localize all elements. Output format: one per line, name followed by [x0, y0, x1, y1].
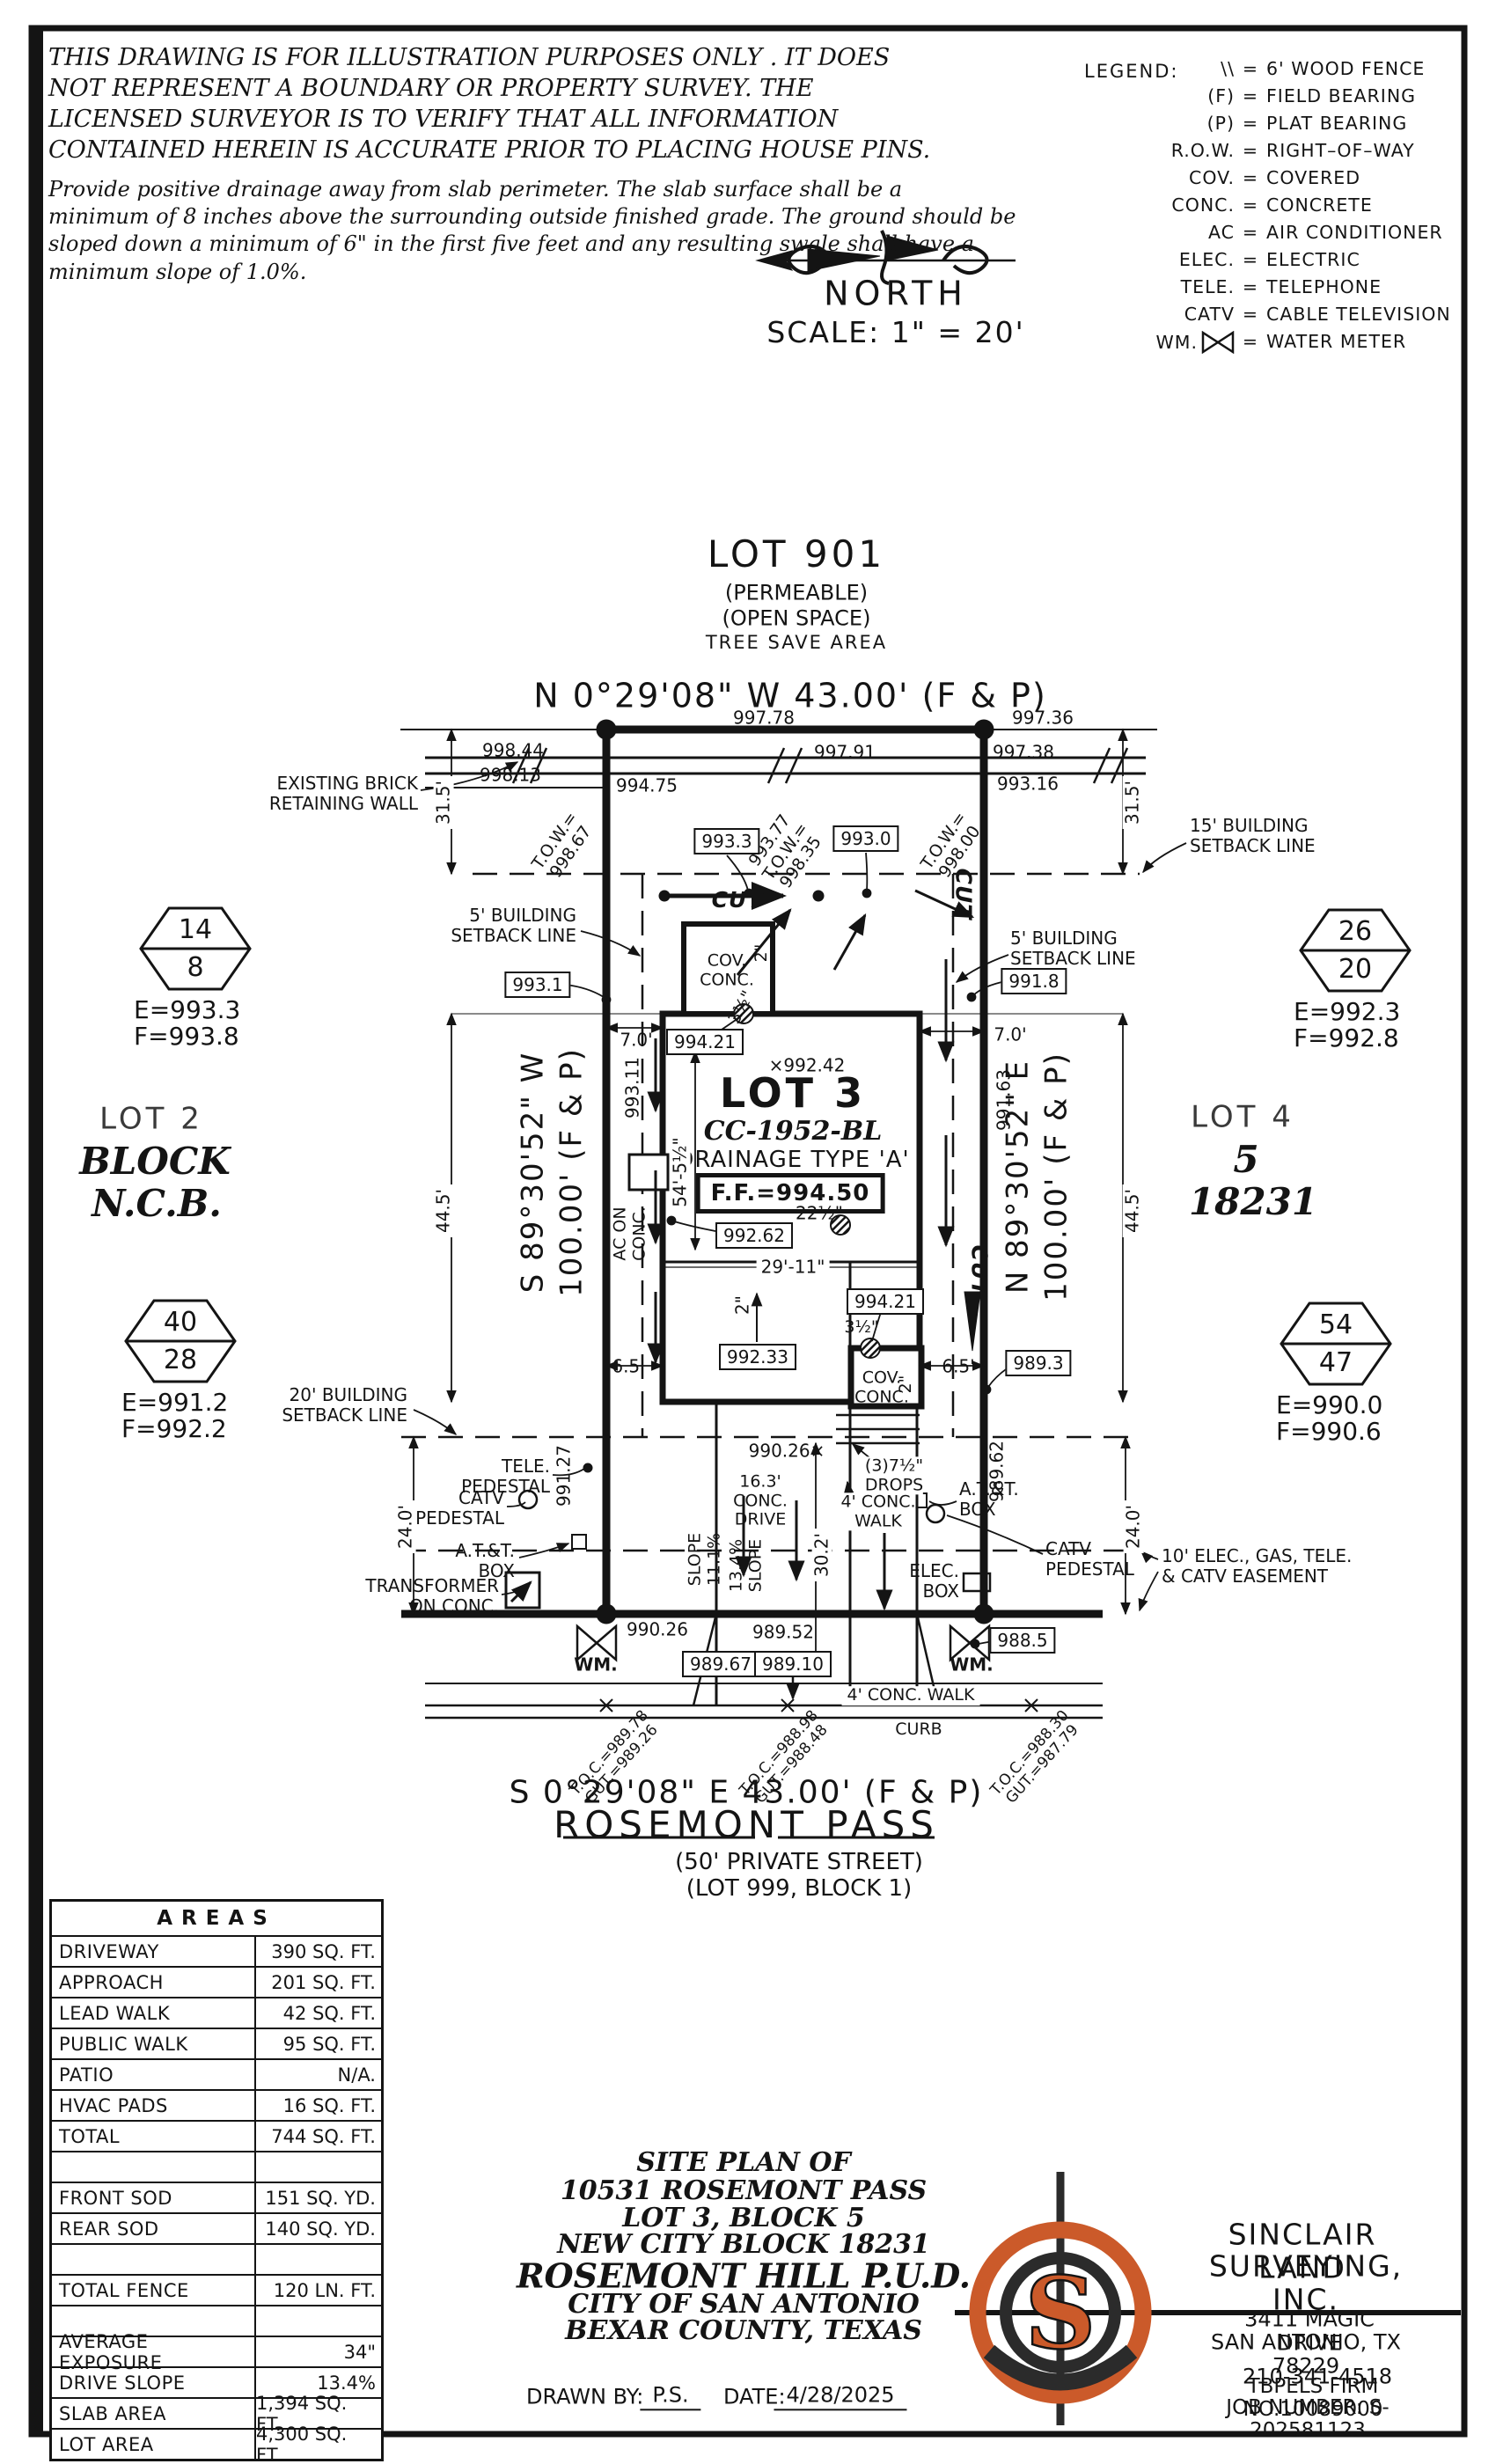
elev-994-21-box-right: 994.21 — [847, 1288, 924, 1315]
dim-24-left: 24.0' — [396, 1500, 416, 1553]
table-row: AVERAGE EXPOSURE34" — [52, 2336, 381, 2366]
north-label: NORTH — [824, 275, 968, 312]
elev-998-13: 998.13 — [480, 766, 541, 786]
lot901-treesave: TREE SAVE AREA — [706, 633, 887, 654]
street-type: (50' PRIVATE STREET) — [675, 1850, 923, 1876]
legend-def: 6' WOOD FENCE — [1266, 58, 1496, 79]
lot901-openspace: (OPEN SPACE) — [722, 606, 871, 630]
bearing-west-len: 100.00' (F & P) — [555, 1047, 590, 1297]
legend-symbol: WM. — [1156, 332, 1198, 353]
dim-31-5-right: 31.5' — [1123, 776, 1143, 829]
easement-label: 10' ELEC., GAS, TELE. & CATV EASEMENT — [1162, 1546, 1352, 1587]
hex-se-f: F=990.6 — [1276, 1418, 1382, 1446]
hex-ne-bottom: 20 — [1338, 955, 1372, 985]
conc-walk-street: 4' CONC. WALK — [842, 1686, 980, 1705]
elev-997-38: 997.38 — [993, 743, 1054, 763]
legend-def: AIR CONDITIONER — [1266, 222, 1496, 243]
table-row: APPROACH201 SQ. FT. — [52, 1966, 381, 1997]
cut-label-3: CUT — [966, 1245, 992, 1297]
setback-20-label: 20' BUILDING SETBACK LINE — [282, 1385, 407, 1426]
legend-symbol: AC — [1150, 222, 1235, 243]
elev-989-3-box: 989.3 — [1005, 1350, 1071, 1376]
lot901-title: LOT 901 — [708, 533, 885, 576]
elev-990-26: 990.26 — [627, 1620, 688, 1640]
table-row: TOTAL744 SQ. FT. — [52, 2120, 381, 2151]
grade-991-27: 991.27 — [554, 1445, 575, 1507]
retaining-wall-label: EXISTING BRICK RETAINING WALL — [269, 774, 418, 814]
hex-se-bottom: 47 — [1319, 1348, 1353, 1378]
hex-ne-top: 26 — [1338, 917, 1372, 947]
site-plan-sheet: S THIS DRAWING IS FOR ILLUSTRATION PURPO… — [0, 0, 1496, 2464]
table-row: PUBLIC WALK95 SQ. FT. — [52, 2028, 381, 2058]
drainage-note: Provide positive drainage away from slab… — [48, 176, 1016, 286]
dim-7-0-left: 7.0' — [620, 1030, 652, 1051]
dim-2in-patio: 2" — [752, 944, 772, 963]
plan-number: CC-1952-BL — [704, 1117, 883, 1147]
bearing-west-dir: S 89°30'52" W — [517, 1052, 551, 1294]
lot3-title: LOT 3 — [720, 1070, 866, 1116]
cov-conc-patio: COV. CONC. — [700, 951, 754, 989]
finished-floor-box: F.F.=994.50 — [696, 1173, 885, 1214]
hex-se-e: E=990.0 — [1276, 1391, 1382, 1419]
transformer-label: TRANSFORMER ON CONC. — [365, 1576, 499, 1617]
table-row: PATION/A. — [52, 2058, 381, 2089]
dim-6-5-right: 6.5' — [942, 1357, 974, 1377]
lot4-label: LOT 4 — [1191, 1101, 1294, 1135]
table-row: DRIVEWAY390 SQ. FT. — [52, 1935, 381, 1966]
elev-988-5-box: 988.5 — [989, 1627, 1055, 1654]
elev-991-8-box: 991.8 — [1001, 968, 1067, 994]
dim-29-11: 29'-11" — [757, 1258, 830, 1278]
wm-right-label: WM. — [950, 1655, 994, 1676]
legend-def: PLAT BEARING — [1266, 113, 1496, 134]
hex-nw-top: 14 — [179, 915, 212, 945]
legend-list: \\=6' WOOD FENCE (F)=FIELD BEARING (P)=P… — [1150, 58, 1496, 354]
cut-label-1: CUT — [712, 888, 764, 913]
lot2-block: BLOCK — [79, 1140, 231, 1183]
table-row: TOTAL FENCE120 LN. FT. — [52, 2274, 381, 2305]
curb-label: CURB — [890, 1720, 947, 1740]
dim-54-5: 54'-5½" — [671, 1133, 691, 1211]
ac-on-conc: AC ON CONC. — [611, 1206, 649, 1261]
setback-15-label: 15' BUILDING SETBACK LINE — [1190, 816, 1316, 856]
dim-22-5: 22½" — [796, 1204, 843, 1224]
legend-def: CABLE TELEVISION — [1266, 304, 1496, 325]
grade-990-26-x: 990.26× — [749, 1441, 825, 1462]
elev-998-44: 998.44 — [482, 741, 544, 761]
title-line1: SITE PLAN OF — [636, 2148, 851, 2178]
legend-def: TELEPHONE — [1266, 276, 1496, 297]
legend-def: WATER METER — [1266, 331, 1496, 354]
dim-6-5-left: 6.5' — [612, 1357, 644, 1377]
hex-nw-bottom: 8 — [187, 953, 203, 983]
elev-997-36: 997.36 — [1012, 708, 1074, 729]
table-row: HVAC PADS16 SQ. FT. — [52, 2089, 381, 2120]
legend-symbol: R.O.W. — [1150, 140, 1235, 161]
legend-def: FIELD BEARING — [1266, 85, 1496, 106]
legend-def: RIGHT–OF–WAY — [1266, 140, 1496, 161]
hex-ne-f: F=992.8 — [1294, 1024, 1399, 1052]
grade-993-11: 993.11 — [623, 1057, 643, 1118]
hex-sw-f: F=992.2 — [121, 1415, 227, 1443]
drawn-by-label: DRAWN BY: — [526, 2385, 643, 2409]
lot4-ncb: 18231 — [1189, 1181, 1317, 1223]
dim-31-5-left: 31.5' — [434, 776, 454, 829]
elev-994-75: 994.75 — [616, 776, 678, 796]
hex-nw-f: F=993.8 — [134, 1023, 239, 1051]
table-row: FRONT SOD151 SQ. YD. — [52, 2182, 381, 2212]
elev-989-67-box: 989.67 — [682, 1651, 759, 1677]
hex-sw-e: E=991.2 — [121, 1389, 228, 1417]
dim-30-2: 30.2' — [812, 1529, 832, 1581]
dim-2in-drive: 2" — [733, 1295, 753, 1315]
drops-label: (3)7½" DROPS — [865, 1456, 923, 1494]
legend-symbol: TELE. — [1150, 276, 1235, 297]
table-row: REAR SOD140 SQ. YD. — [52, 2212, 381, 2243]
lot2-ncb: N.C.B. — [92, 1183, 222, 1225]
hex-ne-e: E=992.3 — [1294, 998, 1400, 1026]
legend-def: COVERED — [1266, 167, 1496, 188]
elev-993-1-box: 993.1 — [504, 972, 570, 998]
slope-11-1: SLOPE 11.1% — [686, 1533, 723, 1586]
bearing-east-dir: N 89°30'52" E — [1001, 1060, 1036, 1294]
hex-se-top: 54 — [1319, 1310, 1353, 1340]
dim-44-5-left: 44.5' — [434, 1184, 454, 1237]
elev-989-10-box: 989.10 — [754, 1651, 832, 1677]
elev-993-0-box: 993.0 — [832, 825, 898, 852]
table-row — [52, 2243, 381, 2274]
hex-sw-top: 40 — [164, 1308, 197, 1338]
areas-table: AREAS DRIVEWAY390 SQ. FT. APPROACH201 SQ… — [49, 1899, 384, 2461]
title-line7: BEXAR COUNTY, TEXAS — [565, 2316, 922, 2346]
legend-symbol: ELEC. — [1150, 249, 1235, 270]
elev-997-91: 997.91 — [814, 743, 876, 763]
conc-walk-label: 4' CONC. WALK — [840, 1492, 915, 1530]
catv-pedestal-label: CATV PEDESTAL — [415, 1488, 504, 1529]
drainage-type: DRAINAGE TYPE 'A' — [676, 1148, 909, 1174]
cut-label-2: CUT — [950, 869, 976, 920]
lot901-permeable: (PERMEABLE) — [725, 581, 868, 605]
elev-992-62-box: 992.62 — [715, 1222, 793, 1249]
legend-def: CONCRETE — [1266, 194, 1496, 216]
lot2-label: LOT 2 — [99, 1103, 203, 1137]
table-row: LOT AREA4,300 SQ. FT. — [52, 2428, 381, 2459]
legend-symbol: CONC. — [1150, 194, 1235, 216]
setback-5-left-label: 5' BUILDING SETBACK LINE — [451, 906, 576, 946]
dim-7-0-right: 7.0' — [994, 1025, 1026, 1045]
logo-monogram: S — [1025, 2256, 1096, 2372]
legend-def: ELECTRIC — [1266, 249, 1496, 270]
areas-title: AREAS — [52, 1902, 381, 1935]
disclaimer-note: THIS DRAWING IS FOR ILLUSTRATION PURPOSE… — [48, 42, 930, 165]
legend-symbol: (P) — [1150, 113, 1235, 134]
lot4-block: 5 — [1233, 1139, 1258, 1181]
wm-left-label: WM. — [574, 1655, 618, 1676]
elev-992-33-box: 992.33 — [719, 1344, 796, 1370]
setback-5-right-label: 5' BUILDING SETBACK LINE — [1010, 928, 1136, 969]
dim-3-5-right: 3½" — [844, 1318, 878, 1338]
elev-993-3-box: 993.3 — [693, 828, 759, 854]
conc-drive-label: 16.3' CONC. DRIVE — [733, 1473, 788, 1530]
legend-symbol: COV. — [1150, 167, 1235, 188]
water-meter-icon — [1201, 331, 1235, 354]
street-lot: (LOT 999, BLOCK 1) — [686, 1876, 912, 1903]
att-box-right-label: A.T.&T. BOX — [959, 1479, 1019, 1520]
legend-symbol: (F) — [1150, 85, 1235, 106]
hex-sw-bottom: 28 — [164, 1346, 197, 1375]
bearing-east-len: 100.00' (F & P) — [1040, 1052, 1074, 1302]
date-value: 4/28/2025 — [774, 2383, 906, 2410]
scale-label: SCALE: 1" = 20' — [766, 316, 1024, 349]
legend-symbol: CATV — [1150, 304, 1235, 325]
elev-989-52: 989.52 — [752, 1623, 814, 1643]
hex-nw-e: E=993.3 — [134, 996, 240, 1024]
slope-13-4: 13.4% SLOPE — [727, 1539, 765, 1592]
catv-pedestal-right-label: CATV PEDESTAL — [1045, 1539, 1134, 1580]
elev-994-21-box-top: 994.21 — [666, 1029, 744, 1055]
dim-44-5-right: 44.5' — [1123, 1184, 1143, 1237]
table-row — [52, 2151, 381, 2182]
dim-2in-porch: 2" — [897, 1375, 916, 1394]
elev-993-16: 993.16 — [997, 774, 1059, 795]
street-name: ROSEMONT PASS — [554, 1804, 939, 1846]
elev-997-78: 997.78 — [733, 708, 795, 729]
legend-symbol: \\ — [1150, 58, 1235, 79]
table-row: LEAD WALK42 SQ. FT. — [52, 1997, 381, 2028]
elec-box-label: ELEC. BOX — [909, 1561, 959, 1602]
firm-name-2: SURVEYING, INC. — [1209, 2249, 1403, 2315]
firm-job-number: JOB NUMBER: S-202581123 — [1214, 2396, 1402, 2442]
drawn-by-value: P.S. — [640, 2383, 700, 2410]
